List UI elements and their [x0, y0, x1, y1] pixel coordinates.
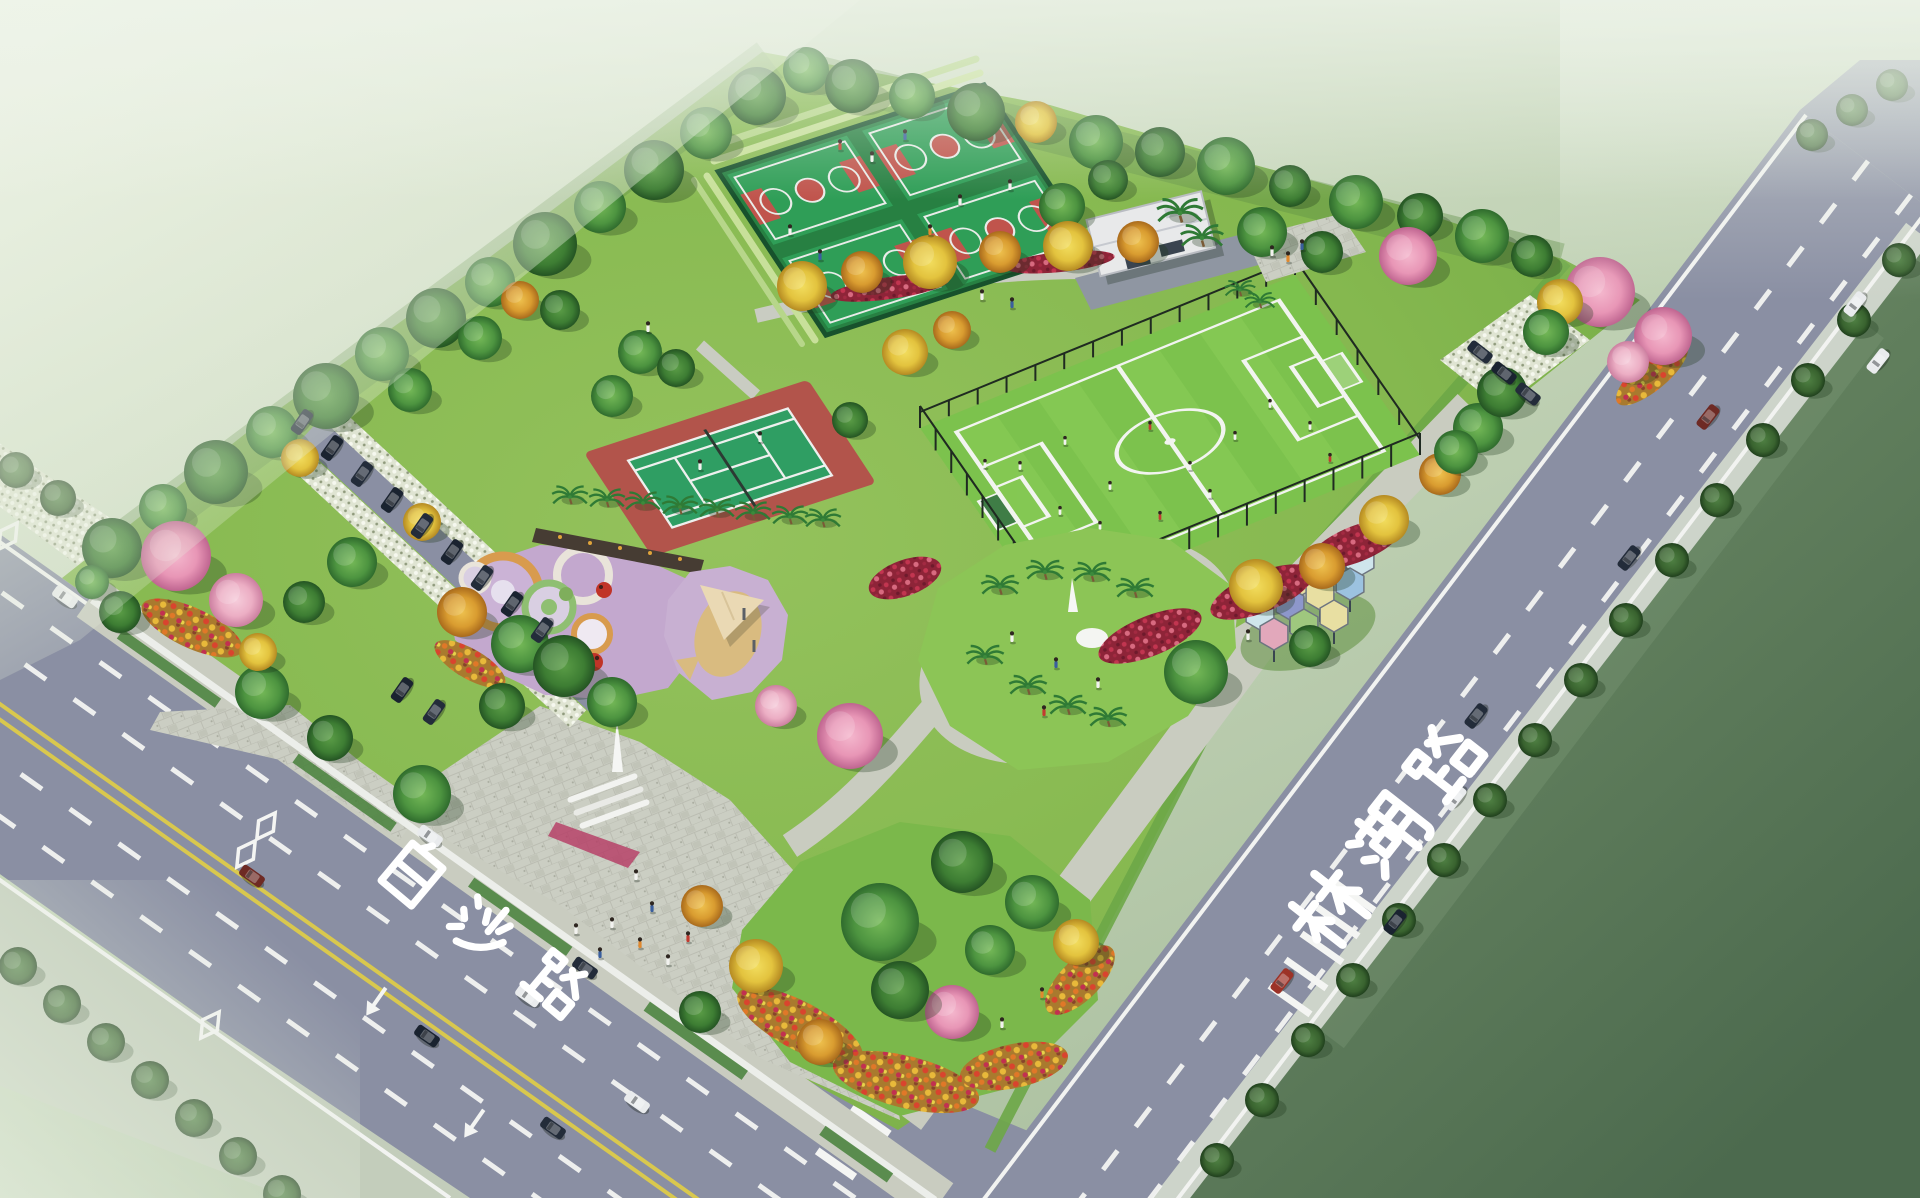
park-aerial-rendering: 白沙路 林湖路: [0, 0, 1920, 1198]
